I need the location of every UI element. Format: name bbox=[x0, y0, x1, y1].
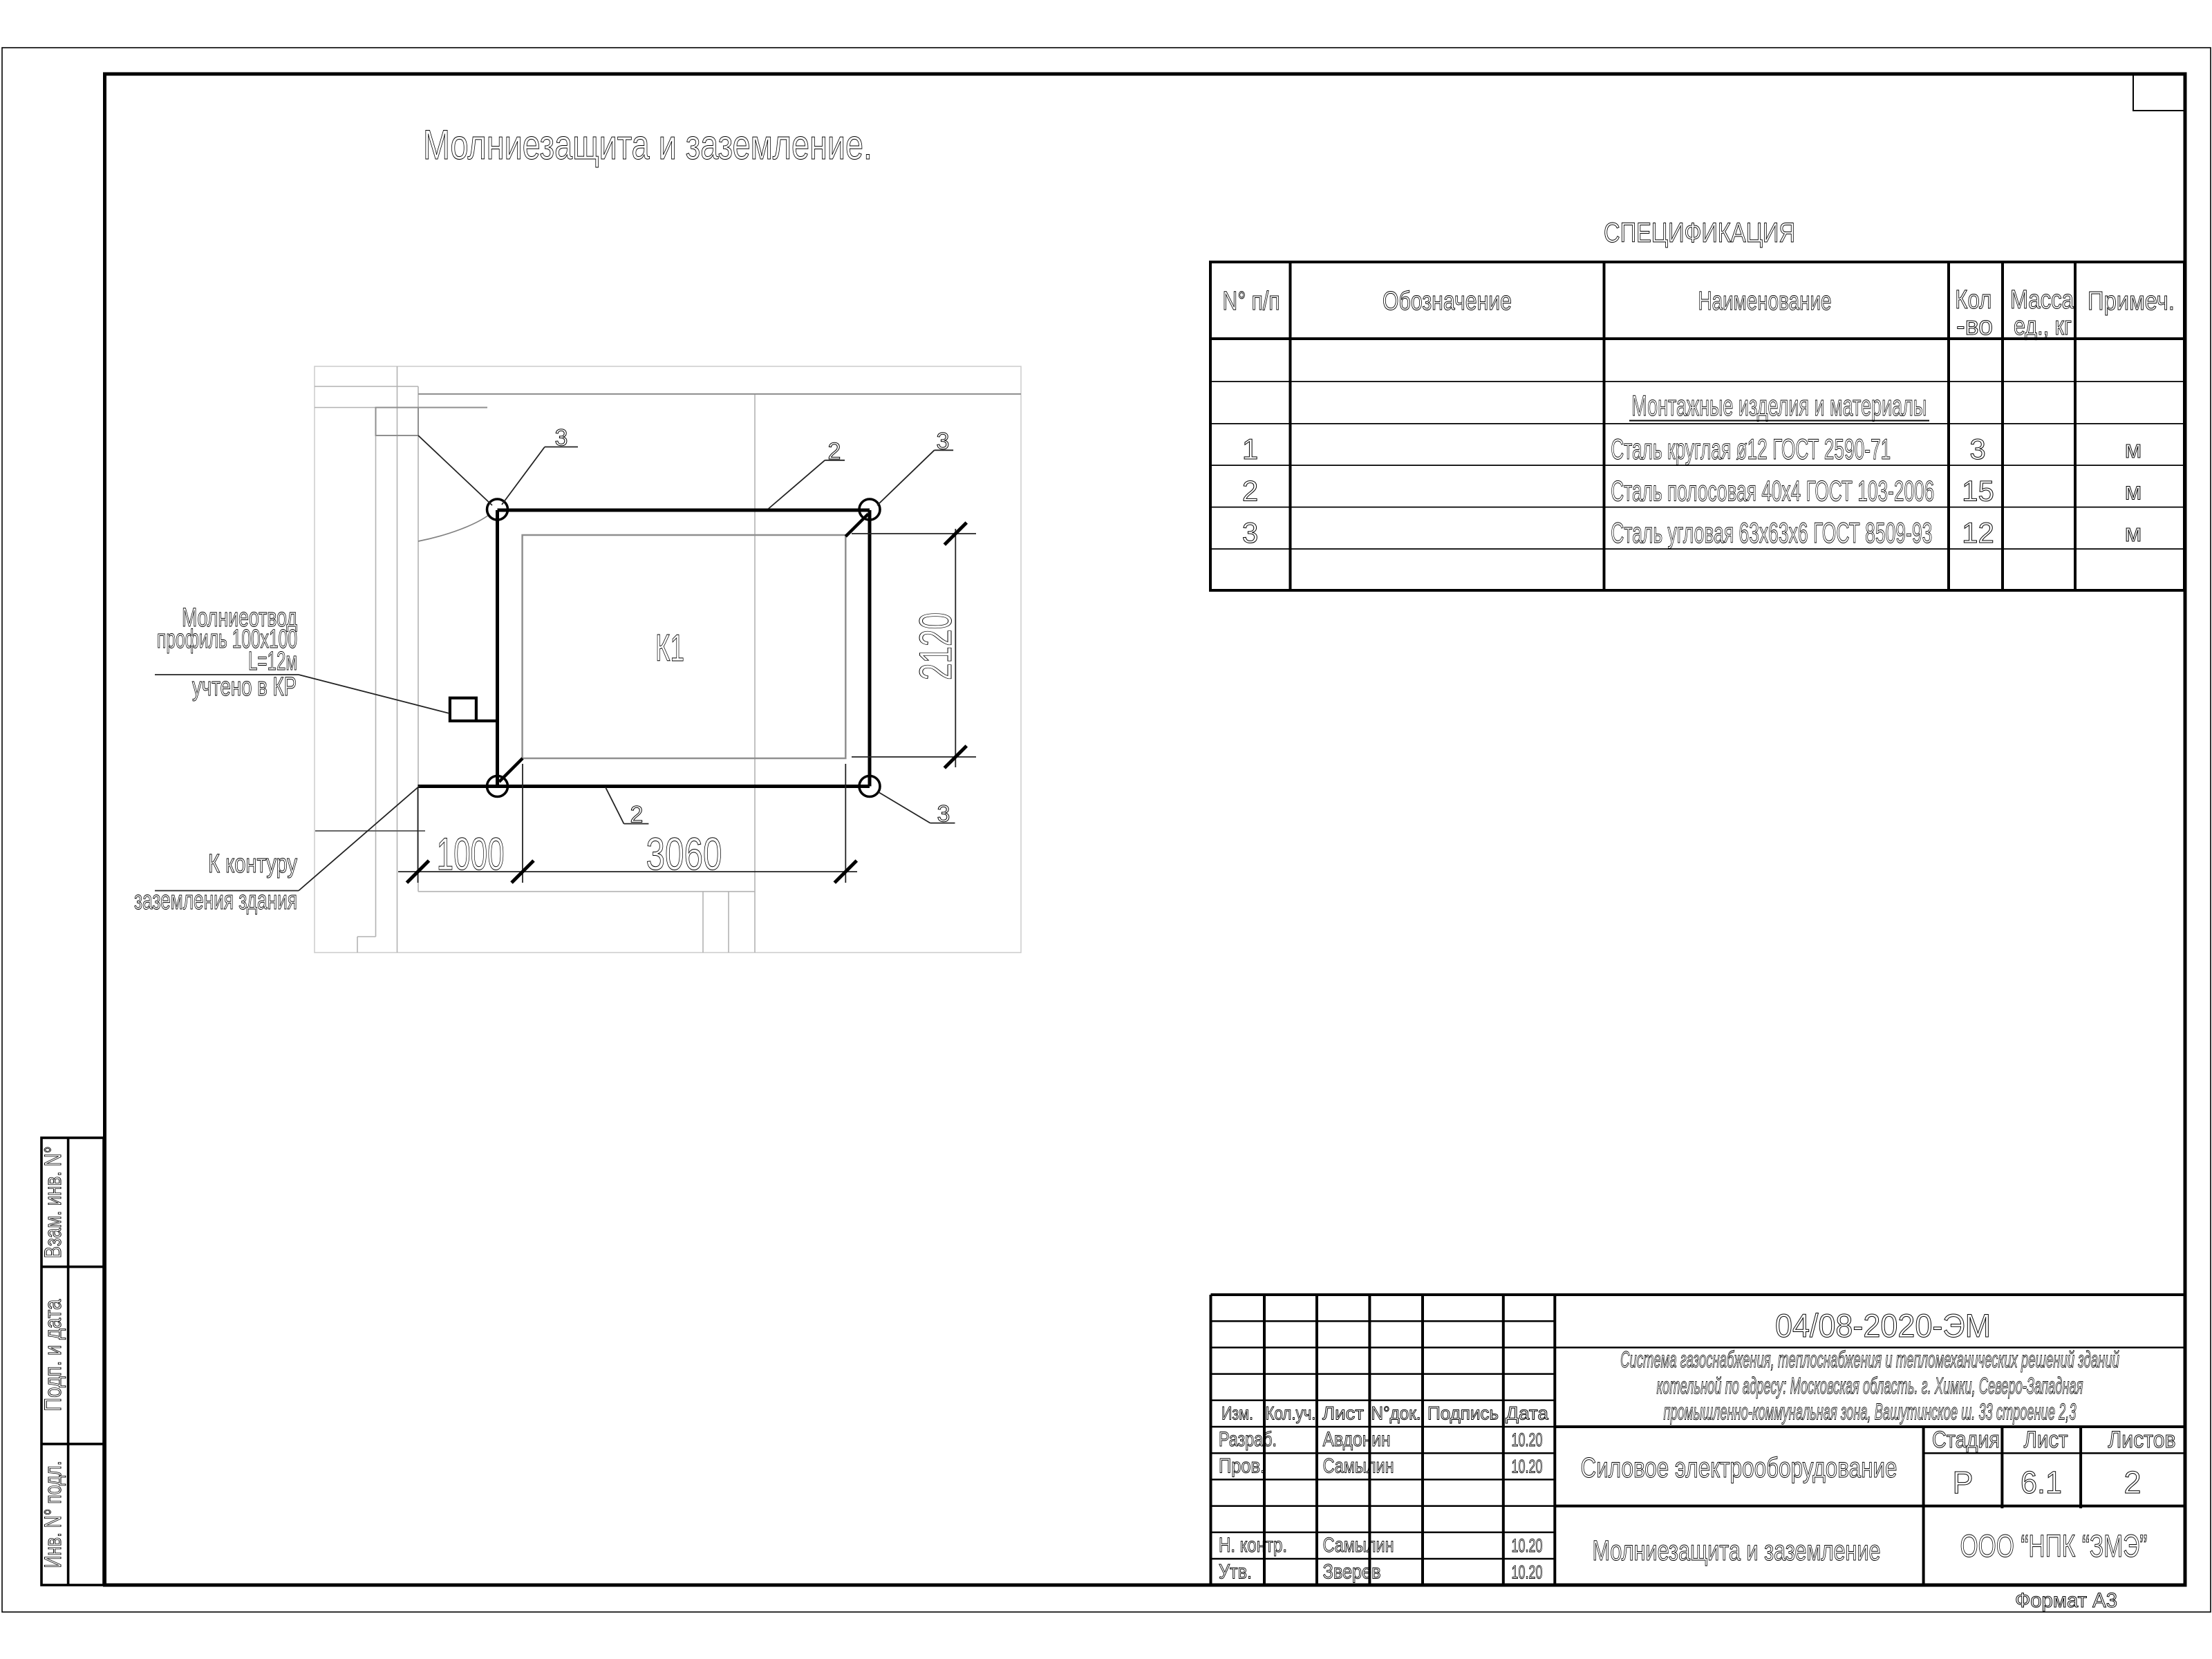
svg-text:3: 3 bbox=[555, 425, 568, 451]
svg-text:м: м bbox=[2125, 435, 2142, 463]
svg-text:2120: 2120 bbox=[910, 612, 961, 680]
svg-text:Лист: Лист bbox=[1322, 1403, 1364, 1424]
svg-text:Сталь круглая ø12 ГОСТ 2590-71: Сталь круглая ø12 ГОСТ 2590-71 bbox=[1611, 433, 1891, 465]
svg-text:Зверев: Зверев bbox=[1323, 1560, 1381, 1583]
svg-text:2: 2 bbox=[2124, 1465, 2141, 1500]
svg-text:Р: Р bbox=[1952, 1465, 1973, 1500]
svg-text:промышленно-коммунальная зона,: промышленно-коммунальная зона, Вашутинск… bbox=[1664, 1399, 2077, 1425]
svg-text:Примеч.: Примеч. bbox=[2088, 287, 2175, 316]
svg-text:Формат А3: Формат А3 bbox=[2015, 1589, 2117, 1612]
svg-text:3: 3 bbox=[1242, 516, 1258, 549]
svg-text:2: 2 bbox=[630, 802, 644, 828]
svg-text:12: 12 bbox=[1962, 516, 1994, 549]
svg-text:04/08-2020-ЭМ: 04/08-2020-ЭМ bbox=[1775, 1307, 1991, 1344]
svg-text:2: 2 bbox=[828, 438, 841, 465]
svg-text:Молниезащита и заземление.: Молниезащита и заземление. bbox=[423, 122, 872, 168]
svg-text:ООО “НПК “ЗМЭ”: ООО “НПК “ЗМЭ” bbox=[1960, 1528, 2148, 1564]
svg-text:Подп. и дата: Подп. и дата bbox=[40, 1300, 66, 1412]
svg-text:Самылин: Самылин bbox=[1323, 1534, 1394, 1557]
svg-text:Обозначение: Обозначение bbox=[1382, 287, 1512, 316]
svg-text:Лист: Лист bbox=[2024, 1427, 2068, 1453]
svg-text:Силовое электрооборудование: Силовое электрооборудование bbox=[1581, 1452, 1897, 1483]
svg-text:Взам. инв. N°: Взам. инв. N° bbox=[40, 1146, 66, 1258]
svg-text:1000: 1000 bbox=[437, 828, 505, 879]
svg-text:Авдонин: Авдонин bbox=[1323, 1428, 1391, 1451]
svg-text:Подпись: Подпись bbox=[1427, 1403, 1499, 1424]
svg-text:3060: 3060 bbox=[646, 828, 722, 879]
svg-text:-во: -во bbox=[1956, 312, 1993, 341]
svg-text:К1: К1 bbox=[655, 626, 684, 669]
svg-text:1: 1 bbox=[1242, 433, 1258, 465]
svg-text:Кол.уч.: Кол.уч. bbox=[1266, 1403, 1316, 1424]
svg-text:N° п/п: N° п/п bbox=[1223, 287, 1280, 316]
svg-text:СПЕЦИФИКАЦИЯ: СПЕЦИФИКАЦИЯ bbox=[1604, 218, 1795, 248]
svg-text:м: м bbox=[2125, 518, 2142, 547]
svg-text:Сталь полосовая 40х4 ГОСТ 103-: Сталь полосовая 40х4 ГОСТ 103-2006 bbox=[1611, 475, 1934, 507]
svg-text:Изм.: Изм. bbox=[1221, 1403, 1253, 1424]
svg-text:котельной по адресу: Московска: котельной по адресу: Московская область.… bbox=[1657, 1373, 2083, 1398]
svg-text:3: 3 bbox=[1969, 433, 1985, 465]
svg-text:учтено в КР: учтено в КР bbox=[192, 673, 297, 702]
svg-text:6.1: 6.1 bbox=[2021, 1465, 2062, 1500]
svg-text:Сталь угловая 63х63х6 ГОСТ 850: Сталь угловая 63х63х6 ГОСТ 8509-93 bbox=[1611, 516, 1932, 549]
svg-text:Листов: Листов bbox=[2108, 1427, 2176, 1453]
svg-text:L=12м: L=12м bbox=[248, 647, 297, 676]
svg-text:Разраб.: Разраб. bbox=[1219, 1428, 1277, 1451]
svg-text:м: м bbox=[2125, 477, 2142, 505]
svg-text:К контуру: К контуру bbox=[208, 850, 297, 879]
svg-text:3: 3 bbox=[937, 801, 950, 827]
svg-text:10.20: 10.20 bbox=[1512, 1535, 1543, 1556]
svg-text:Утв.: Утв. bbox=[1219, 1560, 1252, 1583]
svg-text:Дата: Дата bbox=[1506, 1403, 1549, 1424]
svg-text:Молниезащита и заземление: Молниезащита и заземление bbox=[1593, 1535, 1881, 1566]
svg-text:10.20: 10.20 bbox=[1512, 1562, 1543, 1582]
svg-text:ед., кг: ед., кг bbox=[2014, 312, 2072, 341]
svg-text:Пров.: Пров. bbox=[1219, 1454, 1265, 1477]
svg-text:3: 3 bbox=[937, 428, 950, 454]
svg-text:10.20: 10.20 bbox=[1512, 1456, 1543, 1477]
svg-text:Стадия: Стадия bbox=[1932, 1427, 2000, 1453]
svg-text:заземления здания: заземления здания bbox=[134, 886, 297, 915]
svg-text:Н. контр.: Н. контр. bbox=[1219, 1534, 1287, 1557]
svg-text:Самылин: Самылин bbox=[1323, 1454, 1394, 1477]
svg-text:N°док.: N°док. bbox=[1371, 1403, 1421, 1424]
svg-text:Масса: Масса bbox=[2010, 285, 2074, 315]
svg-text:Монтажные изделия и материалы: Монтажные изделия и материалы bbox=[1631, 389, 1927, 422]
svg-text:Наименование: Наименование bbox=[1698, 287, 1832, 316]
svg-text:Инв. N° подл.: Инв. N° подл. bbox=[40, 1461, 66, 1568]
svg-text:Кол: Кол bbox=[1955, 285, 1991, 315]
svg-text:2: 2 bbox=[1242, 475, 1258, 507]
svg-text:15: 15 bbox=[1962, 475, 1994, 507]
svg-text:10.20: 10.20 bbox=[1512, 1430, 1543, 1450]
svg-text:Система газоснабжения, теплосн: Система газоснабжения, теплоснабжения и … bbox=[1620, 1347, 2119, 1372]
